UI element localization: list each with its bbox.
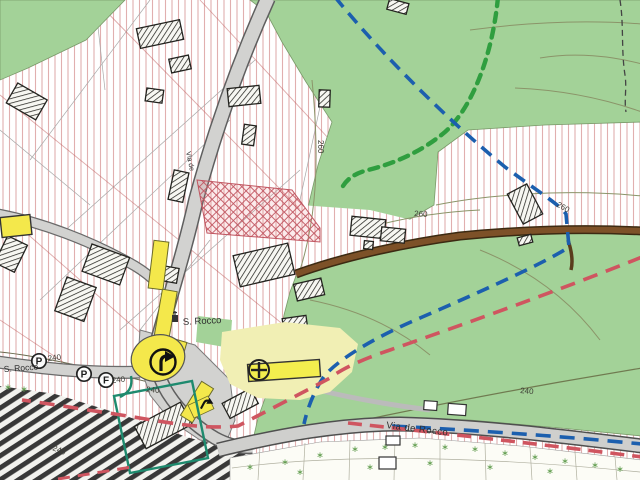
fountain-symbol: F [103, 376, 109, 387]
tree-icon: ∗ [281, 457, 289, 467]
building [364, 241, 374, 250]
tree-icon: ∗ [316, 450, 324, 460]
building [145, 88, 164, 103]
church-icon [249, 360, 269, 380]
tree-icon: ∗ [4, 382, 12, 392]
tree-icon: ∗ [486, 462, 494, 472]
tree-icon: ∗ [381, 442, 389, 452]
shed [379, 457, 396, 469]
contour-label-240: 240 [111, 375, 126, 385]
shed [448, 403, 467, 415]
street-label-s-rocco: S. Rocco [183, 315, 222, 328]
tree-icon: ∗ [411, 440, 419, 450]
tree-icon: ∗ [561, 456, 569, 466]
tree-icon: ∗ [366, 462, 374, 472]
yellow-parcel-west [0, 214, 32, 237]
tree-icon: ∗ [501, 448, 509, 458]
building [380, 227, 405, 243]
building [242, 124, 257, 145]
contour-label-260: 260 [414, 209, 428, 219]
tree-icon: ∗ [296, 467, 304, 477]
contour-label-260: 260 [316, 140, 325, 154]
contour-label-240: 240 [47, 353, 62, 363]
tree-icon: ∗ [441, 442, 449, 452]
tree-icon: ∗ [531, 452, 539, 462]
shed [424, 401, 438, 411]
zoning-map-canvas: P P F ∗ ∗ ∗ ∗ ∗ ∗ ∗ ∗ ∗ ∗ ∗ ∗ ∗ ∗ ∗ ∗ ∗ … [0, 0, 640, 480]
contour-label-240: 240 [520, 386, 535, 396]
tree-icon: ∗ [616, 464, 624, 474]
zone-east-hatch [438, 124, 640, 240]
tree-icon: ∗ [426, 458, 434, 468]
tree-icon: ∗ [351, 444, 359, 454]
parking-symbol: P [81, 370, 88, 381]
roundabout-symbol [151, 350, 176, 375]
building [319, 90, 331, 107]
building [227, 85, 261, 106]
map-svg: P P F ∗ ∗ ∗ ∗ ∗ ∗ ∗ ∗ ∗ ∗ ∗ ∗ ∗ ∗ ∗ ∗ ∗ … [0, 0, 640, 480]
tree-icon: ∗ [591, 460, 599, 470]
contour-label-240: 240 [146, 385, 160, 395]
tree-icon: ∗ [471, 444, 479, 454]
tree-icon: ∗ [20, 384, 28, 394]
tree-icon: ∗ [546, 466, 554, 476]
tree-icon: ∗ [246, 462, 254, 472]
